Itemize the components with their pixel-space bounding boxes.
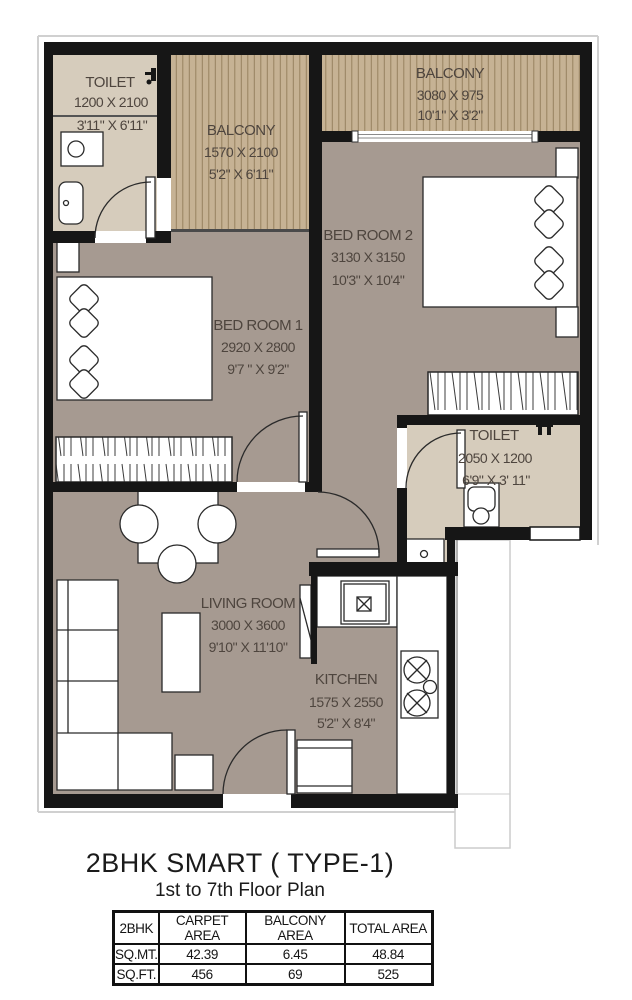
area-table-header: 2BHK [114, 912, 159, 945]
floor-plan-page: TOILET 1200 X 2100 3'11" X 6'11" BALCONY… [0, 0, 632, 1000]
toilet1-wc [59, 182, 83, 224]
floor-plan-drawing: TOILET 1200 X 2100 3'11" X 6'11" BALCONY… [0, 0, 632, 850]
kitchen-ft: 5'2" X 8'4" [317, 715, 376, 731]
area-table-cell: SQ.FT. [114, 964, 159, 985]
wall-toilet2-left-a [397, 425, 407, 428]
bedroom2-mm: 3130 X 3150 [331, 249, 406, 265]
balcony1-ft: 5'2" X 6'11" [209, 166, 274, 182]
balcony2-mm: 3080 X 975 [417, 87, 484, 103]
bedroom1-ft: 9'7 " X 9'2" [227, 361, 289, 377]
living-side-table [175, 755, 213, 790]
plan-title: 2BHK SMART ( TYPE-1) [0, 848, 480, 879]
area-table: 2BHK CARPET AREA BALCONY AREA TOTAL AREA… [112, 910, 434, 986]
wall-bedroom1-pier [305, 482, 309, 492]
bedroom2-side-table-top [556, 148, 578, 178]
room-label-kitchen: KITCHEN 1575 X 2550 5'2" X 8'4" [309, 671, 384, 731]
balcony2-ft: 10'1" X 3'2" [417, 107, 483, 123]
toilet2-name: TOILET [469, 427, 519, 444]
toilet2-ft: 6'9" X 3' 11" [462, 472, 530, 488]
living-name: LIVING ROOM [201, 595, 296, 612]
bedroom1-door-opening [237, 482, 305, 492]
toilet2-window-ledge [530, 527, 580, 540]
toilet1-washbasin [61, 132, 103, 166]
area-table-cell: 456 [159, 964, 246, 985]
area-table-row-sqft: SQ.FT. 456 69 525 [114, 964, 433, 985]
wall-kitchen-top [309, 562, 458, 576]
toilet1-mm: 1200 X 2100 [74, 94, 149, 110]
toilet1-name: TOILET [85, 74, 135, 91]
kitchen-mm: 1575 X 2550 [309, 694, 384, 710]
wall-toilet1-balcony1 [157, 42, 171, 178]
area-table-cell: 48.84 [345, 944, 433, 964]
balcony1-name: BALCONY [207, 122, 276, 139]
bedroom1-name: BED ROOM 1 [213, 317, 302, 334]
coffee-table [162, 613, 200, 692]
wall-bottom-left [44, 794, 223, 808]
bedroom1-side-table [57, 240, 79, 272]
bedroom2-wardrobe [428, 372, 578, 415]
wall-toilet2-bottom [445, 527, 530, 540]
area-table-header-row: 2BHK CARPET AREA BALCONY AREA TOTAL AREA [114, 912, 433, 945]
balcony2-name: BALCONY [416, 65, 485, 82]
service-duct [455, 540, 510, 848]
wall-bottom-right [291, 794, 458, 808]
entry-door-opening [223, 794, 291, 808]
area-table-cell: 6.45 [246, 944, 345, 964]
toilet2-door-opening [397, 428, 407, 488]
bedroom1-mm: 2920 X 2800 [221, 339, 296, 355]
plan-subtitle: 1st to 7th Floor Plan [0, 880, 480, 902]
tv-unit [300, 585, 311, 658]
balcony2-slider-opening [352, 131, 538, 142]
balcony1-floor [171, 54, 309, 230]
toilet2-wc [464, 483, 499, 527]
area-table-header: CARPET AREA [159, 912, 246, 945]
wall-toilet2-left-b [397, 488, 407, 570]
area-table-row-sqmt: SQ.MT. 42.39 6.45 48.84 [114, 944, 433, 964]
wall-center [309, 42, 322, 492]
wall-kitchen-right [447, 540, 455, 794]
wall-balcony2-bottom-a [322, 131, 352, 142]
bedroom2-side-table-bottom [556, 307, 578, 337]
living-ft: 9'10" X 11'10" [209, 639, 288, 655]
wall-bedroom1-bottom [44, 482, 237, 492]
wall-balcony2-bottom-b [538, 131, 580, 142]
bedroom1-wardrobe [56, 437, 232, 482]
fridge [297, 740, 352, 793]
kitchen-sink-counter [317, 576, 397, 627]
area-table-cell: SQ.MT. [114, 944, 159, 964]
bedroom2-ft: 10'3" X 10'4" [332, 272, 405, 288]
toilet2-mm: 2050 X 1200 [458, 450, 533, 466]
wall-toilet1-bottom-a [44, 231, 95, 243]
bedroom2-name: BED ROOM 2 [323, 227, 412, 244]
balcony1-edge-line [171, 229, 309, 232]
area-table-header: BALCONY AREA [246, 912, 345, 945]
area-table-cell: 69 [246, 964, 345, 985]
toilet2-washbasin [405, 539, 444, 564]
wall-tv-stub [311, 576, 317, 664]
kitchen-stove [401, 651, 438, 718]
area-table-cell: 525 [345, 964, 433, 985]
toilet1-door-opening [95, 231, 146, 243]
kitchen-name: KITCHEN [315, 671, 377, 688]
room-label-balcony2: BALCONY 3080 X 975 10'1" X 3'2" [416, 65, 485, 123]
area-table-cell: 42.39 [159, 944, 246, 964]
toilet1-ft: 3'11" X 6'11" [77, 117, 148, 133]
room-label-living: LIVING ROOM 3000 X 3600 9'10" X 11'10" [201, 595, 296, 655]
wall-left [44, 42, 53, 808]
balcony1-mm: 1570 X 2100 [204, 144, 279, 160]
room-label-balcony1: BALCONY 1570 X 2100 5'2" X 6'11" [204, 122, 279, 182]
room-label-bedroom2: BED ROOM 2 3130 X 3150 10'3" X 10'4" [323, 227, 412, 288]
wall-right [580, 42, 592, 540]
living-mm: 3000 X 3600 [211, 617, 286, 633]
wall-toilet2-top [397, 415, 580, 425]
area-table-header: TOTAL AREA [345, 912, 433, 945]
